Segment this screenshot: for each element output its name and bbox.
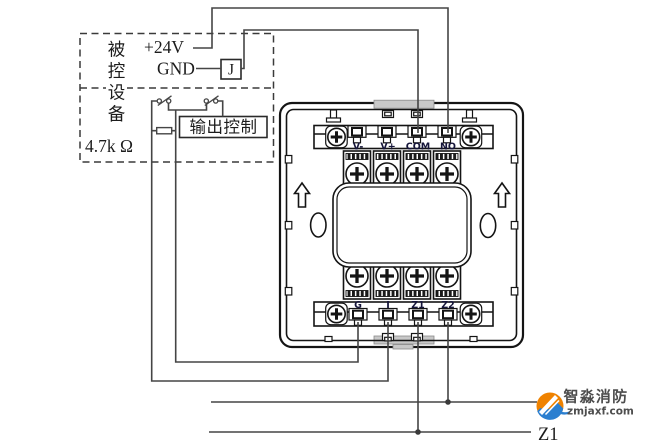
relay-contact-symbols [157,96,218,106]
device-label-char-4: 备 [108,104,126,124]
device-label-char-2: 控 [108,61,126,81]
terminal-label-com: COM [406,141,431,152]
eol-resistor [157,128,172,134]
terminal-label-g: G [354,300,362,311]
terminal-label-z2: Z2 [441,300,455,311]
brand-logo: 智淼消防 zmjaxf.com [537,388,634,420]
terminal-label-no: NO [440,141,456,152]
device-label-char-3: 设 [108,83,126,103]
junction-dot [415,429,421,435]
module-backplate: V- V+ COM NO G I Z1 Z2 [280,100,523,349]
center-plate-inner [337,187,467,263]
terminal-label-vminus: V- [353,141,364,152]
output-control-label: 输出控制 [190,118,258,137]
ground-label: GND [157,59,195,79]
resistor-value-label: 4.7k Ω [85,136,133,156]
module-top-notch [374,100,434,108]
logo-site-text: zmjaxf.com [567,406,634,418]
terminal-label-vplus: V+ [380,141,395,152]
module-bottom-tab [393,345,413,350]
bus-label-z1: Z1 [538,425,559,444]
junction-dot [445,399,451,405]
terminal-label-z1: Z1 [411,300,425,311]
device-label-char-1: 被 [108,40,126,60]
top-terminal-strip [314,126,493,149]
power-24v-label: +24V [144,37,184,57]
logo-brand-text: 智淼消防 [564,388,629,406]
mounting-hole [480,214,495,238]
relay-j-label: J [228,62,234,79]
terminal-label-i: I [386,300,390,311]
bottom-terminal-strip [314,302,493,326]
wire-contact-link [169,103,207,110]
mounting-hole [311,213,326,237]
wire-contact-to-box [218,101,223,117]
wiring-diagram: 被 控 设 备 +24V GND J 输出控制 4.7k Ω [0,0,661,444]
